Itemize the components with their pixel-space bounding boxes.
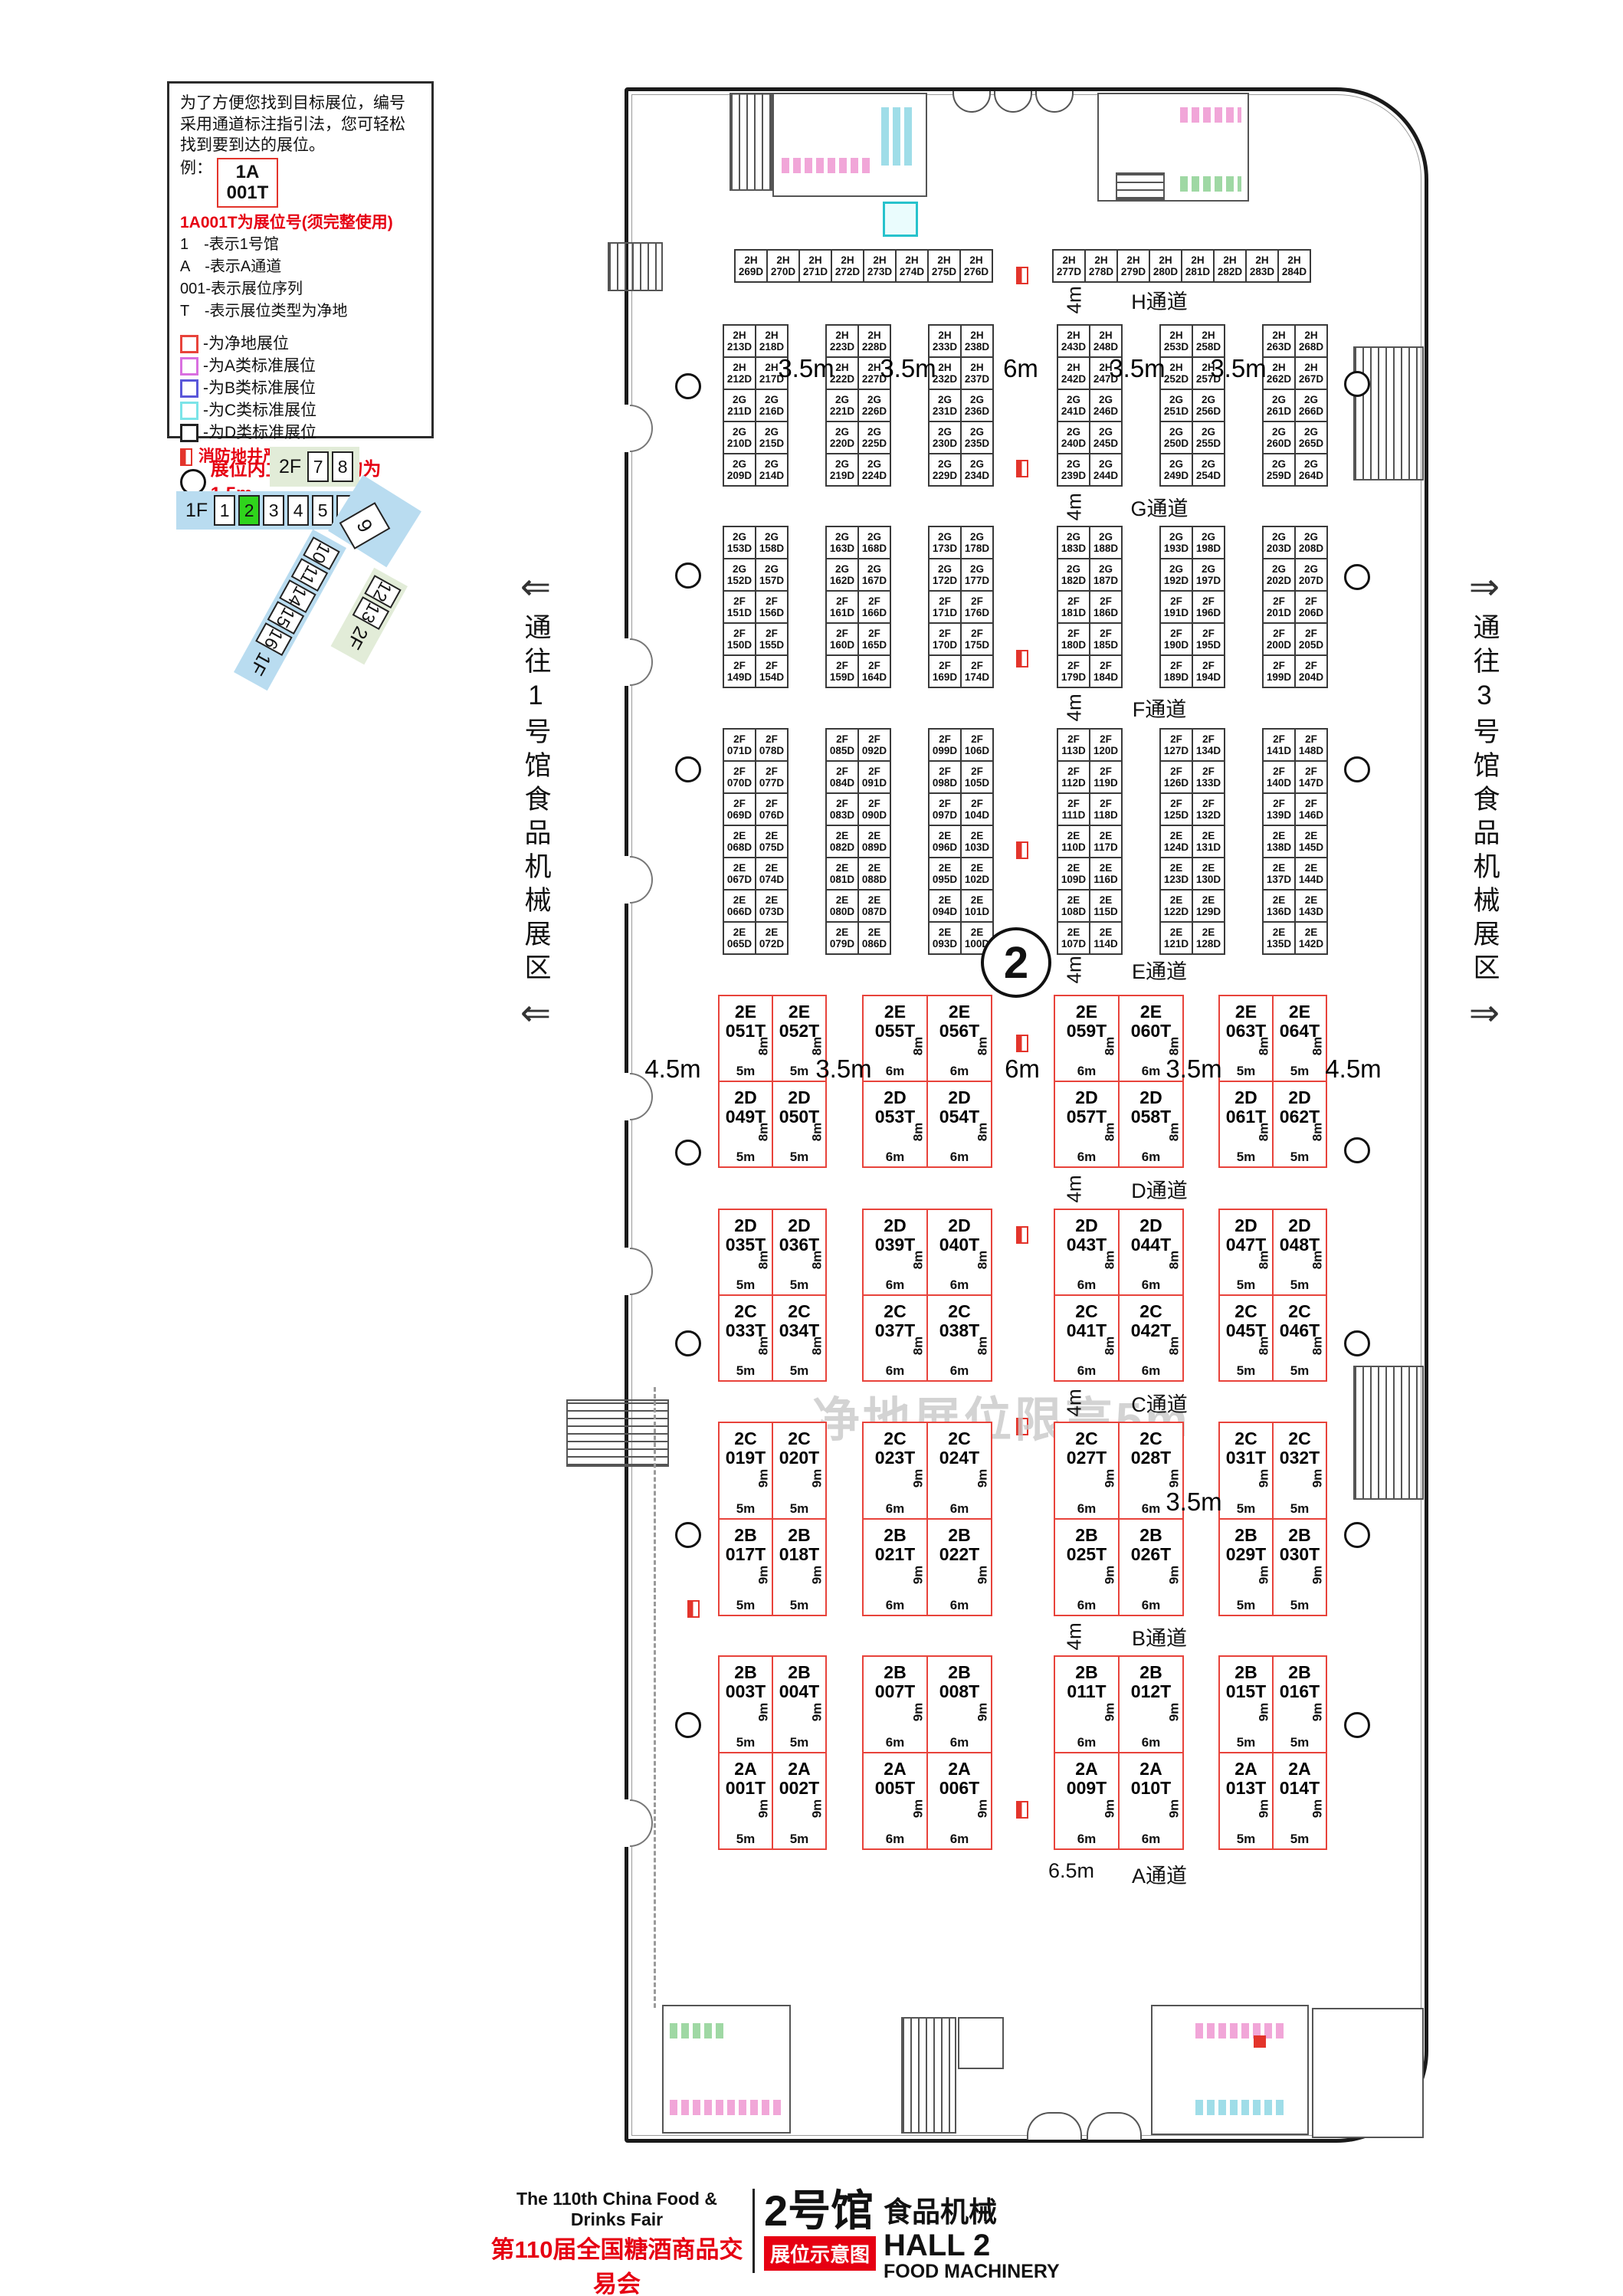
booth-cell: 2H273D — [863, 249, 897, 283]
booth-raw-cell: 2B007T6m9m — [862, 1655, 928, 1753]
booth-cell: 2G225D — [857, 421, 891, 454]
booth-cell: 2F151D — [723, 590, 756, 624]
aisle-label: G通道 — [1110, 492, 1209, 522]
booth-raw-cell: 2E056T6m8m — [926, 995, 992, 1082]
booth-cell: 2G254D — [1192, 453, 1225, 487]
legend-example-label: 例： — [180, 158, 212, 179]
structural-column — [1344, 564, 1370, 590]
spacing-label: 3.5m — [1157, 1055, 1231, 1084]
booth-cell: 2F166D — [857, 590, 891, 624]
legend-booth-number-note: 1A001T为展位号(须完整使用) — [180, 212, 421, 234]
spacing-label: 3.5m — [871, 354, 945, 383]
class-swatch — [180, 335, 198, 353]
booth-cell: 2F199D — [1262, 654, 1296, 688]
booth-cell: 2E081D — [825, 857, 859, 891]
booth-cell: 2H274D — [895, 249, 929, 283]
booth-cell: 2F084D — [825, 760, 859, 794]
booth-cell: 2F069D — [723, 792, 756, 826]
booth-cell: 2E123D — [1159, 857, 1193, 891]
legend-class-list: -为净地展位-为A类标准展位-为B类标准展位-为C类标准展位-为D类标准展位 — [180, 333, 421, 444]
restroom-fixtures — [1195, 2100, 1287, 2115]
class-label: -为A类标准展位 — [203, 356, 316, 377]
booth-cell: 2F139D — [1262, 792, 1296, 826]
booth-cell: 2E101D — [960, 889, 994, 923]
booth-cell: 2G192D — [1159, 558, 1193, 592]
booth-cell: 2E103D — [960, 825, 994, 858]
booth-raw-cell: 2B022T6m9m — [926, 1518, 992, 1616]
booth-raw-cell: 2D047T5m8m — [1218, 1209, 1274, 1296]
legend-intro: 为了方便您找到目标展位，编号采用通道标注指引法，您可轻松找到要到达的展位。 — [180, 93, 421, 156]
fire-well-icon — [1016, 1226, 1028, 1244]
booth-cell: 2F091D — [857, 760, 891, 794]
minimap-floor2-strip: 2F78 — [270, 447, 359, 487]
minimap-floor-label: 2F — [342, 622, 372, 653]
booth-cell: 2E117D — [1089, 825, 1123, 858]
booth-cell: 2E079D — [825, 921, 859, 955]
arrow-right-icon: ⇒ — [1457, 992, 1511, 1035]
booth-cell: 2E121D — [1159, 921, 1193, 955]
booth-raw-cell: 2B011T6m9m — [1054, 1655, 1120, 1753]
booth-cell: 2E143D — [1294, 889, 1328, 923]
class-label: -为净地展位 — [203, 333, 289, 355]
booth-cell: 2F104D — [960, 792, 994, 826]
spacing-label: 4.5m — [636, 1055, 710, 1084]
aisle-label: D通道 — [1110, 1174, 1209, 1204]
class-swatch — [180, 379, 198, 398]
booth-cell: 2G220D — [825, 421, 859, 454]
booth-raw-cell: 2C023T6m9m — [862, 1422, 928, 1520]
booth-cell: 2E088D — [857, 857, 891, 891]
booth-cell: 2E116D — [1089, 857, 1123, 891]
legend-note-line: A -表示A通道 — [180, 256, 421, 278]
booth-cell: 2F111D — [1057, 792, 1090, 826]
booth-cell: 2H275D — [927, 249, 961, 283]
legend-class-row: -为A类标准展位 — [180, 356, 421, 378]
booth-cell: 2F186D — [1089, 590, 1123, 624]
booth-cell: 2E087D — [857, 889, 891, 923]
dashed-boundary — [654, 1387, 657, 2008]
hall-category-cn: 食品机械 — [884, 2189, 1060, 2230]
booth-cell: 2E075D — [755, 825, 789, 858]
minimap-hall-7: 7 — [307, 451, 329, 482]
aisle-width-label: 4m — [1063, 953, 1087, 984]
booth-cell: 2G224D — [857, 453, 891, 487]
booth-cell: 2F078D — [755, 728, 789, 762]
booth-raw-cell: 2A002T5m9m — [772, 1752, 827, 1850]
booth-cell: 2F169D — [928, 654, 962, 688]
booth-raw-cell: 2C046T5m8m — [1272, 1294, 1327, 1382]
fire-well-icon — [1016, 650, 1028, 667]
booth-cell: 2G193D — [1159, 526, 1193, 559]
booth-cell: 2E107D — [1057, 921, 1090, 955]
booth-cell: 2H218D — [755, 324, 789, 358]
booth-cell: 2F125D — [1159, 792, 1193, 826]
booth-cell: 2E067D — [723, 857, 756, 891]
booth-cell: 2G198D — [1192, 526, 1225, 559]
booth-cell: 2E080D — [825, 889, 859, 923]
class-swatch — [180, 402, 198, 420]
corridor-label-left: ⇐ 通往1号馆食品机械展区 ⇐ — [509, 566, 562, 1035]
booth-cell: 2G234D — [960, 453, 994, 487]
booth-cell: 2H238D — [960, 324, 994, 358]
booth-raw-cell: 2C041T6m8m — [1054, 1294, 1120, 1382]
minimap-floor-label: 2F — [279, 456, 301, 478]
booth-raw-cell: 2E059T6m8m — [1054, 995, 1120, 1082]
booth-cell: 2H248D — [1089, 324, 1123, 358]
booth-cell: 2G235D — [960, 421, 994, 454]
structural-column — [675, 1330, 701, 1356]
booth-cell: 2G167D — [857, 558, 891, 592]
booth-raw-cell: 2A013T5m9m — [1218, 1752, 1274, 1850]
aisle-width-label: 4m — [1063, 284, 1087, 314]
booth-cell: 2F164D — [857, 654, 891, 688]
restroom-fixtures — [782, 158, 874, 173]
booth-cell: 2F204D — [1294, 654, 1328, 688]
booth-raw-cell: 2D049T5m8m — [718, 1081, 773, 1168]
booth-cell: 2F141D — [1262, 728, 1296, 762]
minimap-diagonal-strip-1: 10111415161F — [234, 530, 346, 691]
booth-raw-cell: 2D058T6m8m — [1118, 1081, 1184, 1168]
booth-raw-cell: 2C020T5m9m — [772, 1422, 827, 1520]
booth-cell: 2G173D — [928, 526, 962, 559]
booth-cell: 2F132D — [1192, 792, 1225, 826]
booth-raw-cell: 2A010T6m9m — [1118, 1752, 1184, 1850]
booth-cell: 2F113D — [1057, 728, 1090, 762]
booth-cell: 2G207D — [1294, 558, 1328, 592]
booth-cell: 2G250D — [1159, 421, 1193, 454]
booth-raw-cell: 2C024T6m9m — [926, 1422, 992, 1520]
fire-well-icon — [1016, 460, 1028, 477]
booth-cell: 2G152D — [723, 558, 756, 592]
booth-cell: 2H270D — [766, 249, 800, 283]
booth-cell: 2G168D — [857, 526, 891, 559]
fire-well-icon — [1016, 1801, 1028, 1819]
booth-cell: 2F070D — [723, 760, 756, 794]
class-label: -为B类标准展位 — [203, 378, 316, 399]
booth-raw-cell: 2D053T6m8m — [862, 1081, 928, 1168]
minimap-hall-3: 3 — [263, 495, 284, 526]
booth-cell: 2F174D — [960, 654, 994, 688]
elevator — [958, 2017, 1004, 2069]
booth-cell: 2G226D — [857, 389, 891, 422]
footer-divider — [752, 2189, 755, 2273]
booth-raw-cell: 2B029T5m9m — [1218, 1518, 1274, 1616]
booth-cell: 2F127D — [1159, 728, 1193, 762]
booth-cell: 2G260D — [1262, 421, 1296, 454]
booth-cell: 2E130D — [1192, 857, 1225, 891]
spacing-label: 3.5m — [1100, 354, 1174, 383]
booth-cell: 2G157D — [755, 558, 789, 592]
arrow-left-icon: ⇐ — [509, 566, 562, 608]
booth-cell: 2G264D — [1294, 453, 1328, 487]
hall-title-en: HALL 2 — [884, 2230, 1060, 2261]
legend-notes: 1 -表示1号馆A -表示A通道001-表示展位序列T -表示展位类型为净地 — [180, 234, 421, 323]
booth-cell: 2E094D — [928, 889, 962, 923]
booth-cell: 2E110D — [1057, 825, 1090, 858]
booth-raw-cell: 2A014T5m9m — [1272, 1752, 1327, 1850]
corridor-label-right: ⇒ 通往3号馆食品机械展区 ⇒ — [1457, 566, 1511, 1035]
aisle-label: E通道 — [1110, 955, 1209, 985]
booth-cell: 2E124D — [1159, 825, 1193, 858]
booth-raw-cell: 2B026T6m9m — [1118, 1518, 1184, 1616]
booth-cell: 2G239D — [1057, 453, 1090, 487]
structural-column — [675, 373, 701, 399]
corridor-left-text: 通往1号馆食品机械展区 — [516, 613, 556, 987]
booth-cell: 2F118D — [1089, 792, 1123, 826]
spacing-label: 6m — [985, 1055, 1059, 1084]
booth-cell: 2E145D — [1294, 825, 1328, 858]
booth-cell: 2G229D — [928, 453, 962, 487]
booth-cell: 2G255D — [1192, 421, 1225, 454]
booth-cell: 2F170D — [928, 622, 962, 656]
booth-cell: 2G183D — [1057, 526, 1090, 559]
booth-cell: 2G203D — [1262, 526, 1296, 559]
booth-cell: 2F119D — [1089, 760, 1123, 794]
booth-cell: 2E136D — [1262, 889, 1296, 923]
fire-well-icon — [687, 1600, 700, 1618]
booth-cell: 2G197D — [1192, 558, 1225, 592]
class-label: -为C类标准展位 — [203, 400, 316, 421]
booth-cell: 2H243D — [1057, 324, 1090, 358]
booth-cell: 2H279D — [1116, 249, 1150, 283]
structural-column — [675, 756, 701, 782]
booth-raw-cell: 2D062T5m8m — [1272, 1081, 1327, 1168]
booth-raw-cell: 2C045T5m8m — [1218, 1294, 1274, 1382]
booth-cell: 2G215D — [755, 421, 789, 454]
booth-cell: 2G172D — [928, 558, 962, 592]
corridor-right-text: 通往3号馆食品机械展区 — [1465, 613, 1504, 987]
booth-raw-cell: 2A006T6m9m — [926, 1752, 992, 1850]
booth-cell: 2F154D — [755, 654, 789, 688]
booth-cell: 2E068D — [723, 825, 756, 858]
booth-raw-cell: 2D054T6m8m — [926, 1081, 992, 1168]
booth-raw-cell: 2B021T6m9m — [862, 1518, 928, 1616]
booth-raw-cell: 2C034T5m8m — [772, 1294, 827, 1382]
booth-cell: 2F071D — [723, 728, 756, 762]
minimap-hall-8: 8 — [332, 451, 353, 482]
booth-cell: 2G219D — [825, 453, 859, 487]
booth-cell: 2G259D — [1262, 453, 1296, 487]
booth-cell: 2E093D — [928, 921, 962, 955]
booth-cell: 2F092D — [857, 728, 891, 762]
booth-cell: 2G244D — [1089, 453, 1123, 487]
booth-cell: 2F140D — [1262, 760, 1296, 794]
booth-cell: 2H269D — [734, 249, 768, 283]
booth-cell: 2G211D — [723, 389, 756, 422]
booth-cell: 2E129D — [1192, 889, 1225, 923]
booth-cell: 2E144D — [1294, 857, 1328, 891]
booth-cell: 2E128D — [1192, 921, 1225, 955]
spacing-label: 4.5m — [1316, 1055, 1390, 1084]
booth-raw-cell: 2D040T6m8m — [926, 1209, 992, 1296]
booth-cell: 2F126D — [1159, 760, 1193, 794]
booth-cell: 2H263D — [1262, 324, 1296, 358]
booth-cell: 2F133D — [1192, 760, 1225, 794]
booth-cell: 2F112D — [1057, 760, 1090, 794]
booth-cell: 2H277D — [1052, 249, 1086, 283]
outside-unit — [608, 242, 663, 291]
booth-cell: 2E108D — [1057, 889, 1090, 923]
fair-title-en: The 110th China Food & Drinks Fair — [490, 2189, 743, 2230]
booth-cell: 2E137D — [1262, 857, 1296, 891]
stairs — [1116, 172, 1165, 200]
booth-raw-cell: 2C037T6m8m — [862, 1294, 928, 1382]
booth-cell: 2F149D — [723, 654, 756, 688]
booth-cell: 2F206D — [1294, 590, 1328, 624]
booth-cell: 2G236D — [960, 389, 994, 422]
booth-cell: 2F134D — [1192, 728, 1225, 762]
booth-cell: 2G162D — [825, 558, 859, 592]
booth-cell: 2E066D — [723, 889, 756, 923]
booth-cell: 2G163D — [825, 526, 859, 559]
floorplan-page: 为了方便您找到目标展位，编号采用通道标注指引法，您可轻松找到要到达的展位。 例：… — [0, 0, 1623, 2296]
structural-column — [1344, 1137, 1370, 1163]
aisle-width-label: 4m — [1063, 691, 1087, 722]
booth-cell: 2E072D — [755, 921, 789, 955]
booth-cell: 2F201D — [1262, 590, 1296, 624]
booth-cell: 2G153D — [723, 526, 756, 559]
booth-cell: 2E109D — [1057, 857, 1090, 891]
booth-cell: 2E114D — [1089, 921, 1123, 955]
booth-cell: 2G158D — [755, 526, 789, 559]
booth-raw-cell: 2D061T5m8m — [1218, 1081, 1274, 1168]
booth-cell: 2H278D — [1084, 249, 1118, 283]
booth-cell: 2G214D — [755, 453, 789, 487]
booth-cell: 2H212D — [723, 356, 756, 390]
aisle-label: A通道 — [1110, 1859, 1209, 1889]
fire-well-icon — [1016, 267, 1028, 284]
minimap-diagonal-strip-2: 12132F — [330, 568, 408, 665]
plan-badge: 展位示意图 — [764, 2236, 876, 2271]
booth-raw-cell: 2A009T6m9m — [1054, 1752, 1120, 1850]
booth-raw-cell: 2C019T5m9m — [718, 1422, 773, 1520]
booth-cell: 2G245D — [1089, 421, 1123, 454]
aisle-width-label: 6.5m — [1048, 1859, 1107, 1883]
footer-branding: The 110th China Food & Drinks Fair 第110届… — [490, 2189, 1180, 2293]
legend-class-row: -为B类标准展位 — [180, 378, 421, 400]
structural-column — [675, 1140, 701, 1166]
booth-cell: 2G230D — [928, 421, 962, 454]
booth-cell: 2E096D — [928, 825, 962, 858]
booth-cell: 2F077D — [755, 760, 789, 794]
aisle-width-label: 4m — [1063, 1386, 1087, 1417]
booth-cell: 2G246D — [1089, 389, 1123, 422]
booth-cell: 2G208D — [1294, 526, 1328, 559]
booth-cell: 2E115D — [1089, 889, 1123, 923]
booth-raw-cell: 2B025T6m9m — [1054, 1518, 1120, 1616]
booth-cell: 2F155D — [755, 622, 789, 656]
side-room — [1312, 2008, 1424, 2138]
structural-column — [675, 1712, 701, 1738]
booth-cell: 2F190D — [1159, 622, 1193, 656]
class-swatch — [180, 357, 198, 376]
minimap: 2F78 1F123456 9 10111415161F 12132F — [153, 441, 475, 694]
booth-cell: 2G265D — [1294, 421, 1328, 454]
minimap-floor-label: 1F — [245, 648, 276, 679]
booth-raw-cell: 2C033T5m8m — [718, 1294, 773, 1382]
booth-cell: 2H272D — [831, 249, 864, 283]
booth-cell: 2E135D — [1262, 921, 1296, 955]
booth-cell: 2F191D — [1159, 590, 1193, 624]
booth-cell: 2H223D — [825, 324, 859, 358]
booth-raw-cell: 2A001T5m9m — [718, 1752, 773, 1850]
booth-cell: 2G256D — [1192, 389, 1225, 422]
booth-cell: 2F083D — [825, 792, 859, 826]
booth-cell: 2H280D — [1149, 249, 1182, 283]
booth-cell: 2F106D — [960, 728, 994, 762]
booth-raw-cell: 2D036T5m8m — [772, 1209, 827, 1296]
booth-raw-cell: 2D050T5m8m — [772, 1081, 827, 1168]
booth-cell: 2H233D — [928, 324, 962, 358]
booth-cell: 2F120D — [1089, 728, 1123, 762]
aisle-label: F通道 — [1110, 693, 1209, 723]
booth-cell: 2H271D — [798, 249, 832, 283]
red-marker — [1254, 2035, 1266, 2048]
booth-cell: 2G178D — [960, 526, 994, 559]
booth-cell: 2F171D — [928, 590, 962, 624]
booth-raw-cell: 2B003T5m9m — [718, 1655, 773, 1753]
booth-raw-cell: 2B004T5m9m — [772, 1655, 827, 1753]
arrow-left-icon: ⇐ — [509, 992, 562, 1035]
booth-cell: 2E122D — [1159, 889, 1193, 923]
structural-column — [675, 1522, 701, 1548]
booth-cell: 2F185D — [1089, 622, 1123, 656]
spacing-label: 3.5m — [1202, 354, 1275, 383]
booth-cell: 2F146D — [1294, 792, 1328, 826]
service-box — [883, 202, 918, 237]
minimap-hall-2: 2 — [238, 495, 260, 526]
booth-cell: 2F200D — [1262, 622, 1296, 656]
booth-cell: 2F085D — [825, 728, 859, 762]
booth-raw-cell: 2D057T6m8m — [1054, 1081, 1120, 1168]
booth-cell: 2H258D — [1192, 324, 1225, 358]
structural-column — [1344, 756, 1370, 782]
booth-cell: 2H228D — [857, 324, 891, 358]
legend-box: 为了方便您找到目标展位，编号采用通道标注指引法，您可轻松找到要到达的展位。 例：… — [167, 81, 434, 438]
aisle-width-label: 4m — [1063, 490, 1087, 521]
booth-cell: 2F150D — [723, 622, 756, 656]
structural-column — [1344, 371, 1370, 397]
stairwell — [730, 93, 772, 191]
booth-cell: 2E102D — [960, 857, 994, 891]
legend-note-line: T -表示展位类型为净地 — [180, 300, 421, 323]
booth-cell: 2F176D — [960, 590, 994, 624]
hall-category-en: FOOD MACHINERY — [884, 2261, 1060, 2283]
booth-cell: 2F196D — [1192, 590, 1225, 624]
spacing-label: 6m — [984, 354, 1057, 383]
aisle-width-label: 4m — [1063, 1173, 1087, 1203]
fair-title-cn: 第110届全国糖酒商品交易会 — [490, 2230, 743, 2296]
booth-cell: 2E131D — [1192, 825, 1225, 858]
booth-cell: 2H284D — [1277, 249, 1311, 283]
restroom-fixtures — [670, 2023, 723, 2039]
booth-cell: 2F179D — [1057, 654, 1090, 688]
booth-cell: 2F205D — [1294, 622, 1328, 656]
booth-cell: 2E138D — [1262, 825, 1296, 858]
booth-cell: 2G210D — [723, 421, 756, 454]
booth-cell: 2G221D — [825, 389, 859, 422]
booth-cell: 2G231D — [928, 389, 962, 422]
booth-cell: 2F184D — [1089, 654, 1123, 688]
minimap-hall-1: 1 — [214, 495, 235, 526]
footer-right: 2号馆 展位示意图 食品机械 HALL 2 FOOD MACHINERY — [764, 2189, 1060, 2293]
booth-cell: 2H242D — [1057, 356, 1090, 390]
booth-cell: 2G182D — [1057, 558, 1090, 592]
booth-raw-cell: 2B008T6m9m — [926, 1655, 992, 1753]
booth-cell: 2G241D — [1057, 389, 1090, 422]
booth-cell: 2G261D — [1262, 389, 1296, 422]
booth-cell: 2H268D — [1294, 324, 1328, 358]
